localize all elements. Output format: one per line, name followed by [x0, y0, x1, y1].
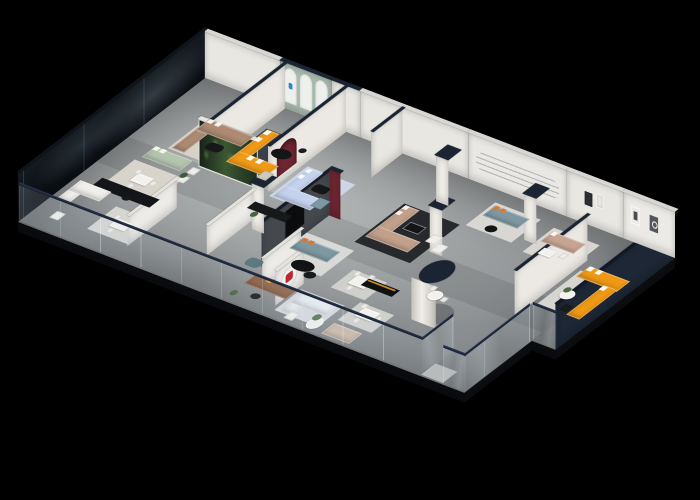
feature-accent-maroon: [329, 169, 340, 220]
art-panel-white: [631, 205, 640, 227]
brand-logo-blue: [289, 83, 293, 90]
logo-red-mark: [286, 270, 293, 284]
art-mark-dark: [634, 211, 638, 221]
art-frame-dark: [585, 191, 593, 207]
art-mark-white: [652, 220, 658, 229]
glass-front-short: [443, 345, 466, 392]
display-arch: [284, 66, 296, 105]
art-panel-dark: [650, 215, 658, 234]
art-frame-light: [596, 193, 604, 210]
pylon-mid-front: [436, 154, 448, 205]
display-arch: [300, 72, 312, 111]
showroom-3d-render: [0, 0, 700, 500]
